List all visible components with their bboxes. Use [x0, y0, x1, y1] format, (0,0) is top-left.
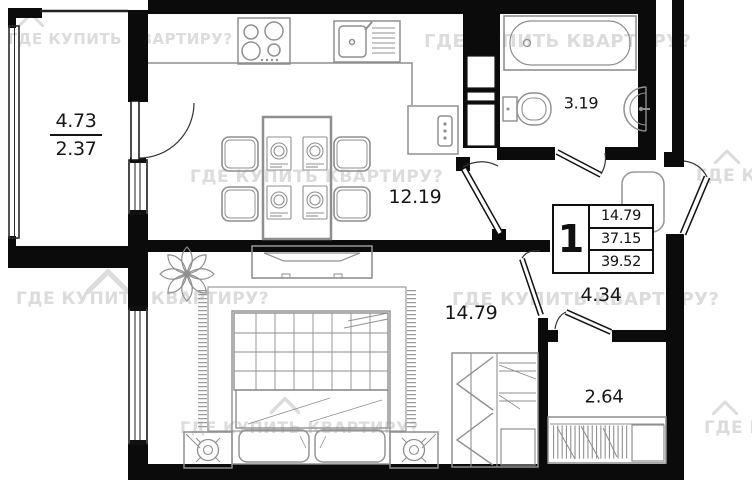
place-setting — [303, 137, 327, 170]
hallway-area-label: 4.34 — [580, 284, 621, 306]
balcony-area-reduced: 2.37 — [44, 138, 108, 160]
washbasin — [624, 87, 650, 131]
kitchen-living-area-label: 12.19 — [389, 186, 442, 208]
balcony-area-label: 4.73 2.37 — [44, 110, 108, 160]
living-room-door — [463, 162, 500, 233]
closet-door — [555, 312, 611, 332]
balcony-area-full: 4.73 — [50, 110, 101, 136]
info-row-apartment-area: 37.15 — [590, 229, 652, 252]
fridge — [408, 106, 458, 154]
plant — [160, 247, 214, 301]
bathroom-area-label: 3.19 — [564, 94, 598, 113]
nightstand — [390, 432, 438, 468]
place-setting — [267, 186, 291, 219]
bedroom-door — [522, 251, 541, 315]
wardrobe-bedroom — [452, 353, 538, 467]
bathtub — [504, 16, 636, 70]
bedroom-area-label: 14.79 — [445, 302, 498, 324]
apartment-areas: 14.79 37.15 39.52 — [590, 206, 652, 272]
place-setting — [303, 186, 327, 219]
ventilation-shaft — [467, 56, 495, 146]
nightstand — [184, 432, 232, 468]
chair — [334, 137, 370, 171]
bedroom-window — [129, 306, 147, 445]
stove — [238, 18, 290, 64]
apartment-info-box: 1 14.79 37.15 39.52 — [552, 204, 654, 274]
chair — [222, 137, 258, 171]
info-row-living-area: 14.79 — [590, 206, 652, 229]
wardrobe-closet — [548, 417, 666, 463]
toilet — [503, 93, 551, 125]
balcony-glazing — [9, 26, 19, 238]
floor-plan: ГДЕ КУПИТЬ КВАРТИРУ? ГДЕ КУПИТЬ КВАРТИРУ… — [0, 0, 752, 480]
dining-table — [263, 117, 331, 239]
place-setting — [267, 137, 291, 170]
bed — [232, 311, 390, 464]
info-row-total-area: 39.52 — [590, 251, 652, 272]
balcony-window — [129, 158, 147, 215]
bathroom-door — [557, 152, 606, 175]
kitchen-sink — [334, 21, 400, 62]
rooms-count: 1 — [554, 206, 590, 272]
chair — [222, 187, 258, 221]
entrance-door — [683, 161, 707, 234]
chair — [334, 187, 370, 221]
balcony-door — [131, 101, 194, 160]
kitchen-counter — [148, 63, 412, 105]
closet-area-label: 2.64 — [585, 387, 624, 408]
